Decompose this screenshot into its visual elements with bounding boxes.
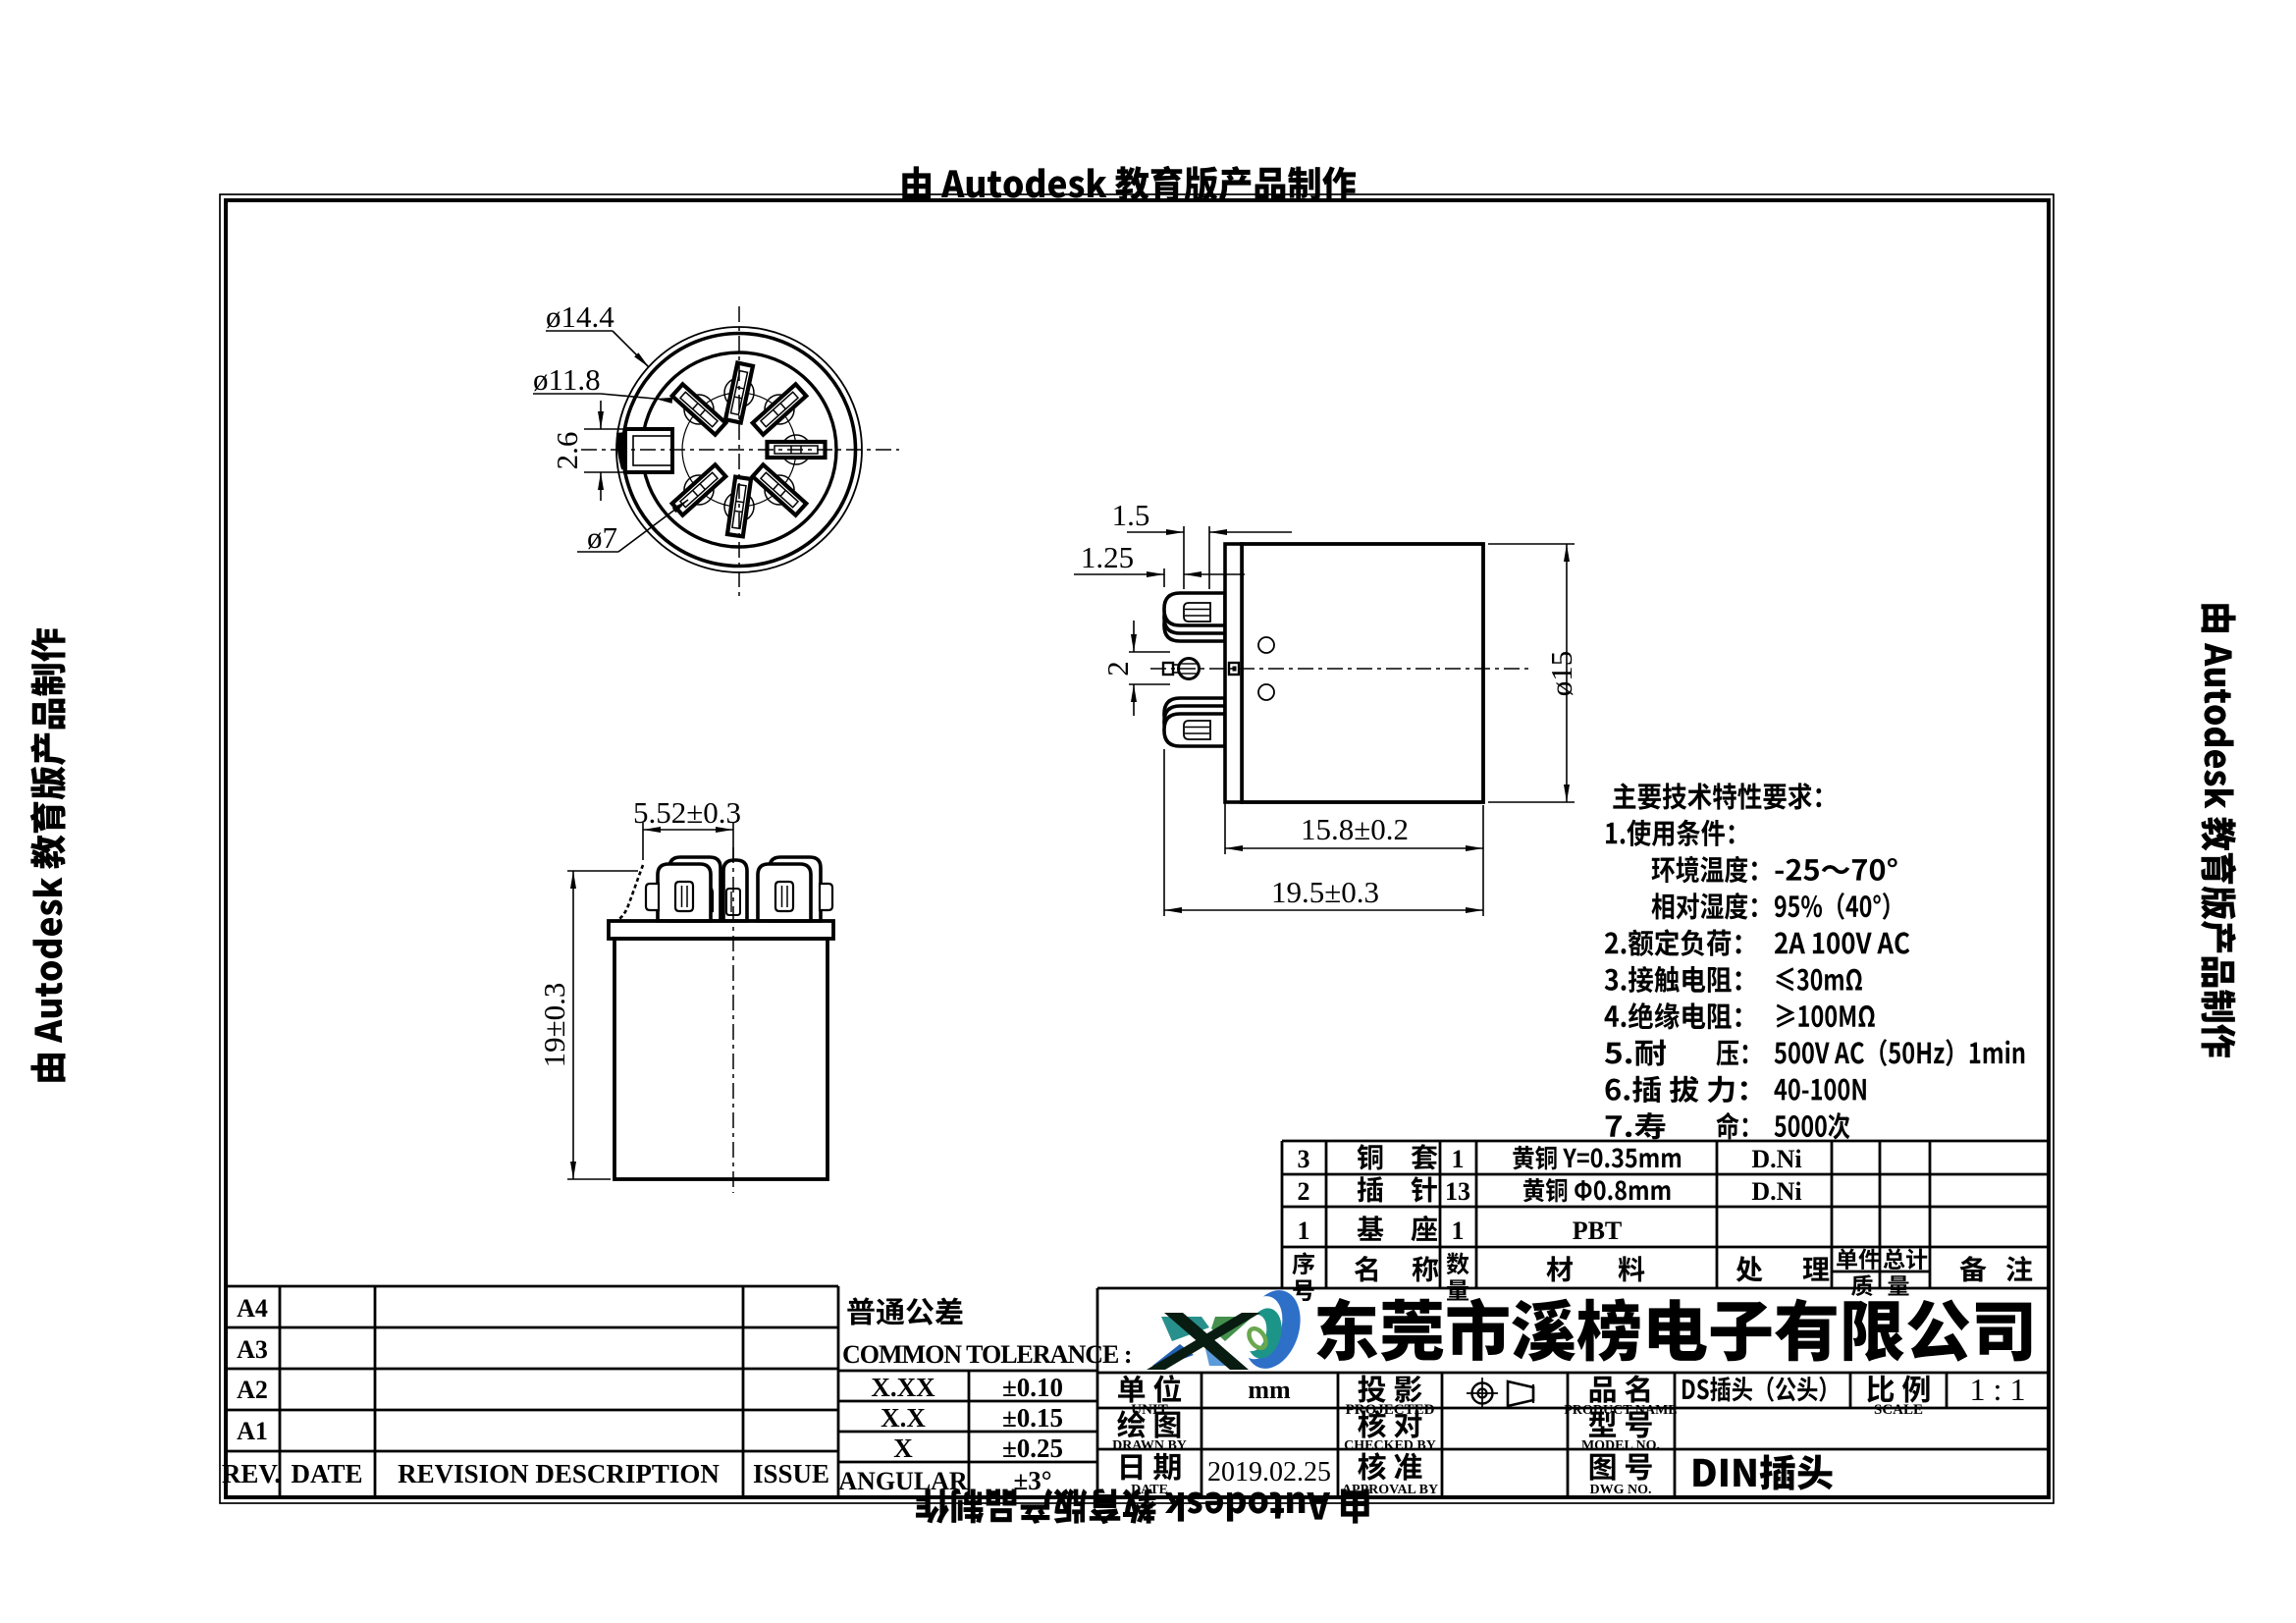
svg-text:ø15: ø15 — [1544, 651, 1578, 697]
svg-text:X: X — [893, 1434, 913, 1463]
svg-text:PBT: PBT — [1573, 1217, 1623, 1245]
svg-text:PROJECTED: PROJECTED — [1346, 1402, 1435, 1418]
svg-text:1: 1 — [1452, 1145, 1465, 1173]
svg-text:1: 1 — [1298, 1217, 1310, 1245]
svg-text:ANGULAR: ANGULAR — [838, 1467, 968, 1495]
svg-text:1: 1 — [1452, 1217, 1465, 1245]
svg-text:MODEL NO.: MODEL NO. — [1581, 1438, 1660, 1453]
svg-text:19±0.3: 19±0.3 — [537, 983, 571, 1068]
svg-text:REVISION DESCRIPTION: REVISION DESCRIPTION — [398, 1459, 720, 1488]
svg-text:COMMON TOLERANCE :: COMMON TOLERANCE : — [842, 1340, 1132, 1369]
svg-text:ø14.4: ø14.4 — [546, 299, 614, 334]
svg-text:X.XX: X.XX — [871, 1373, 935, 1402]
svg-text:DWG NO.: DWG NO. — [1590, 1483, 1652, 1497]
svg-text:±3°: ±3° — [1013, 1466, 1051, 1495]
svg-text:ø7: ø7 — [587, 520, 617, 555]
svg-text:D.Ni: D.Ni — [1751, 1177, 1801, 1206]
svg-text:A1: A1 — [237, 1417, 268, 1445]
svg-text:5.52±0.3: 5.52±0.3 — [633, 795, 741, 830]
svg-text:3: 3 — [1298, 1145, 1310, 1173]
svg-text:2: 2 — [1298, 1177, 1310, 1206]
svg-text:ø11.8: ø11.8 — [533, 362, 601, 397]
svg-text:A4: A4 — [237, 1294, 268, 1323]
svg-text:ISSUE: ISSUE — [753, 1459, 829, 1488]
svg-text:±0.25: ±0.25 — [1002, 1434, 1063, 1463]
svg-text:DATE: DATE — [291, 1459, 362, 1488]
svg-text:±0.10: ±0.10 — [1002, 1373, 1063, 1402]
svg-text:DRAWN BY: DRAWN BY — [1112, 1438, 1187, 1453]
svg-text:D.Ni: D.Ni — [1751, 1145, 1801, 1173]
svg-text:CHECKED BY: CHECKED BY — [1344, 1438, 1436, 1453]
svg-text:SCALE: SCALE — [1874, 1402, 1923, 1418]
svg-text:1 : 1: 1 : 1 — [1970, 1372, 2026, 1407]
svg-text:2.6: 2.6 — [550, 432, 584, 470]
svg-text:REV.: REV. — [222, 1459, 281, 1488]
svg-text:2: 2 — [1100, 661, 1135, 676]
svg-text:DATE: DATE — [1131, 1483, 1168, 1497]
svg-text:±0.15: ±0.15 — [1002, 1403, 1063, 1433]
svg-text:X.X: X.X — [881, 1403, 926, 1433]
svg-text:A3: A3 — [237, 1335, 268, 1364]
svg-text:APPROVAL BY: APPROVAL BY — [1342, 1483, 1438, 1497]
svg-text:mm: mm — [1248, 1376, 1291, 1404]
svg-text:1.5: 1.5 — [1112, 498, 1150, 532]
svg-text:2019.02.25: 2019.02.25 — [1207, 1457, 1331, 1488]
svg-text:13: 13 — [1445, 1177, 1470, 1206]
svg-text:15.8±0.2: 15.8±0.2 — [1301, 812, 1409, 846]
svg-text:A2: A2 — [237, 1376, 268, 1404]
svg-text:PRODUCT NAME: PRODUCT NAME — [1564, 1403, 1677, 1418]
svg-text:1.25: 1.25 — [1081, 540, 1134, 574]
svg-text:19.5±0.3: 19.5±0.3 — [1271, 875, 1379, 909]
